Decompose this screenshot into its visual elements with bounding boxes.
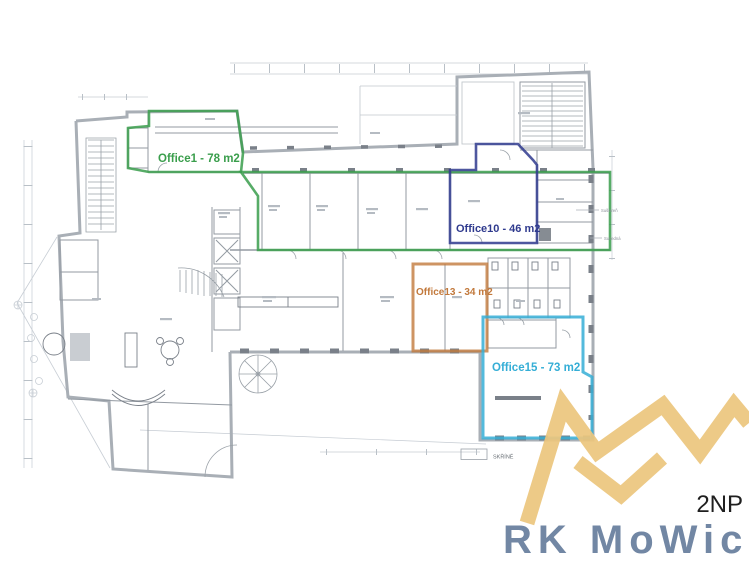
level-label: 2NP	[696, 491, 743, 518]
winder-stair	[178, 268, 224, 297]
side-annotation-top: Sušiareň	[601, 208, 618, 213]
legend: SKŘÍNĚ	[461, 449, 514, 461]
floor-plan-image: Office1 - 78 m2 Office10 - 46 m2 Office1…	[0, 0, 749, 562]
office-10-outline: Office10 - 46 m2	[450, 144, 540, 243]
office-overlays: Office1 - 78 m2 Office10 - 46 m2 Office1…	[128, 111, 610, 438]
watermark: 2NP RK MoWic	[503, 405, 749, 562]
office-13-label: Office13 - 34 m2	[416, 287, 493, 298]
legend-swatch	[461, 449, 487, 460]
side-annotation-bottom: Susedná	[604, 236, 621, 241]
spiral-stair	[239, 355, 277, 393]
partition-walls	[60, 82, 610, 470]
legend-label: SKŘÍNĚ	[493, 453, 514, 461]
brand-name: RK MoWic	[503, 518, 748, 562]
office-15-label: Office15 - 73 m2	[492, 362, 580, 374]
left-staircase	[86, 138, 116, 232]
office-1-label: Office1 - 78 m2	[158, 153, 240, 165]
upper-court-lines	[360, 86, 457, 144]
topright-staircase	[522, 83, 583, 148]
floor-plan-svg: Office1 - 78 m2 Office10 - 46 m2 Office1…	[0, 0, 749, 562]
stairs	[86, 83, 583, 393]
dimension-lines	[24, 63, 612, 468]
office-13-outline: Office13 - 34 m2	[413, 264, 493, 351]
office-10-label: Office10 - 46 m2	[456, 223, 540, 235]
